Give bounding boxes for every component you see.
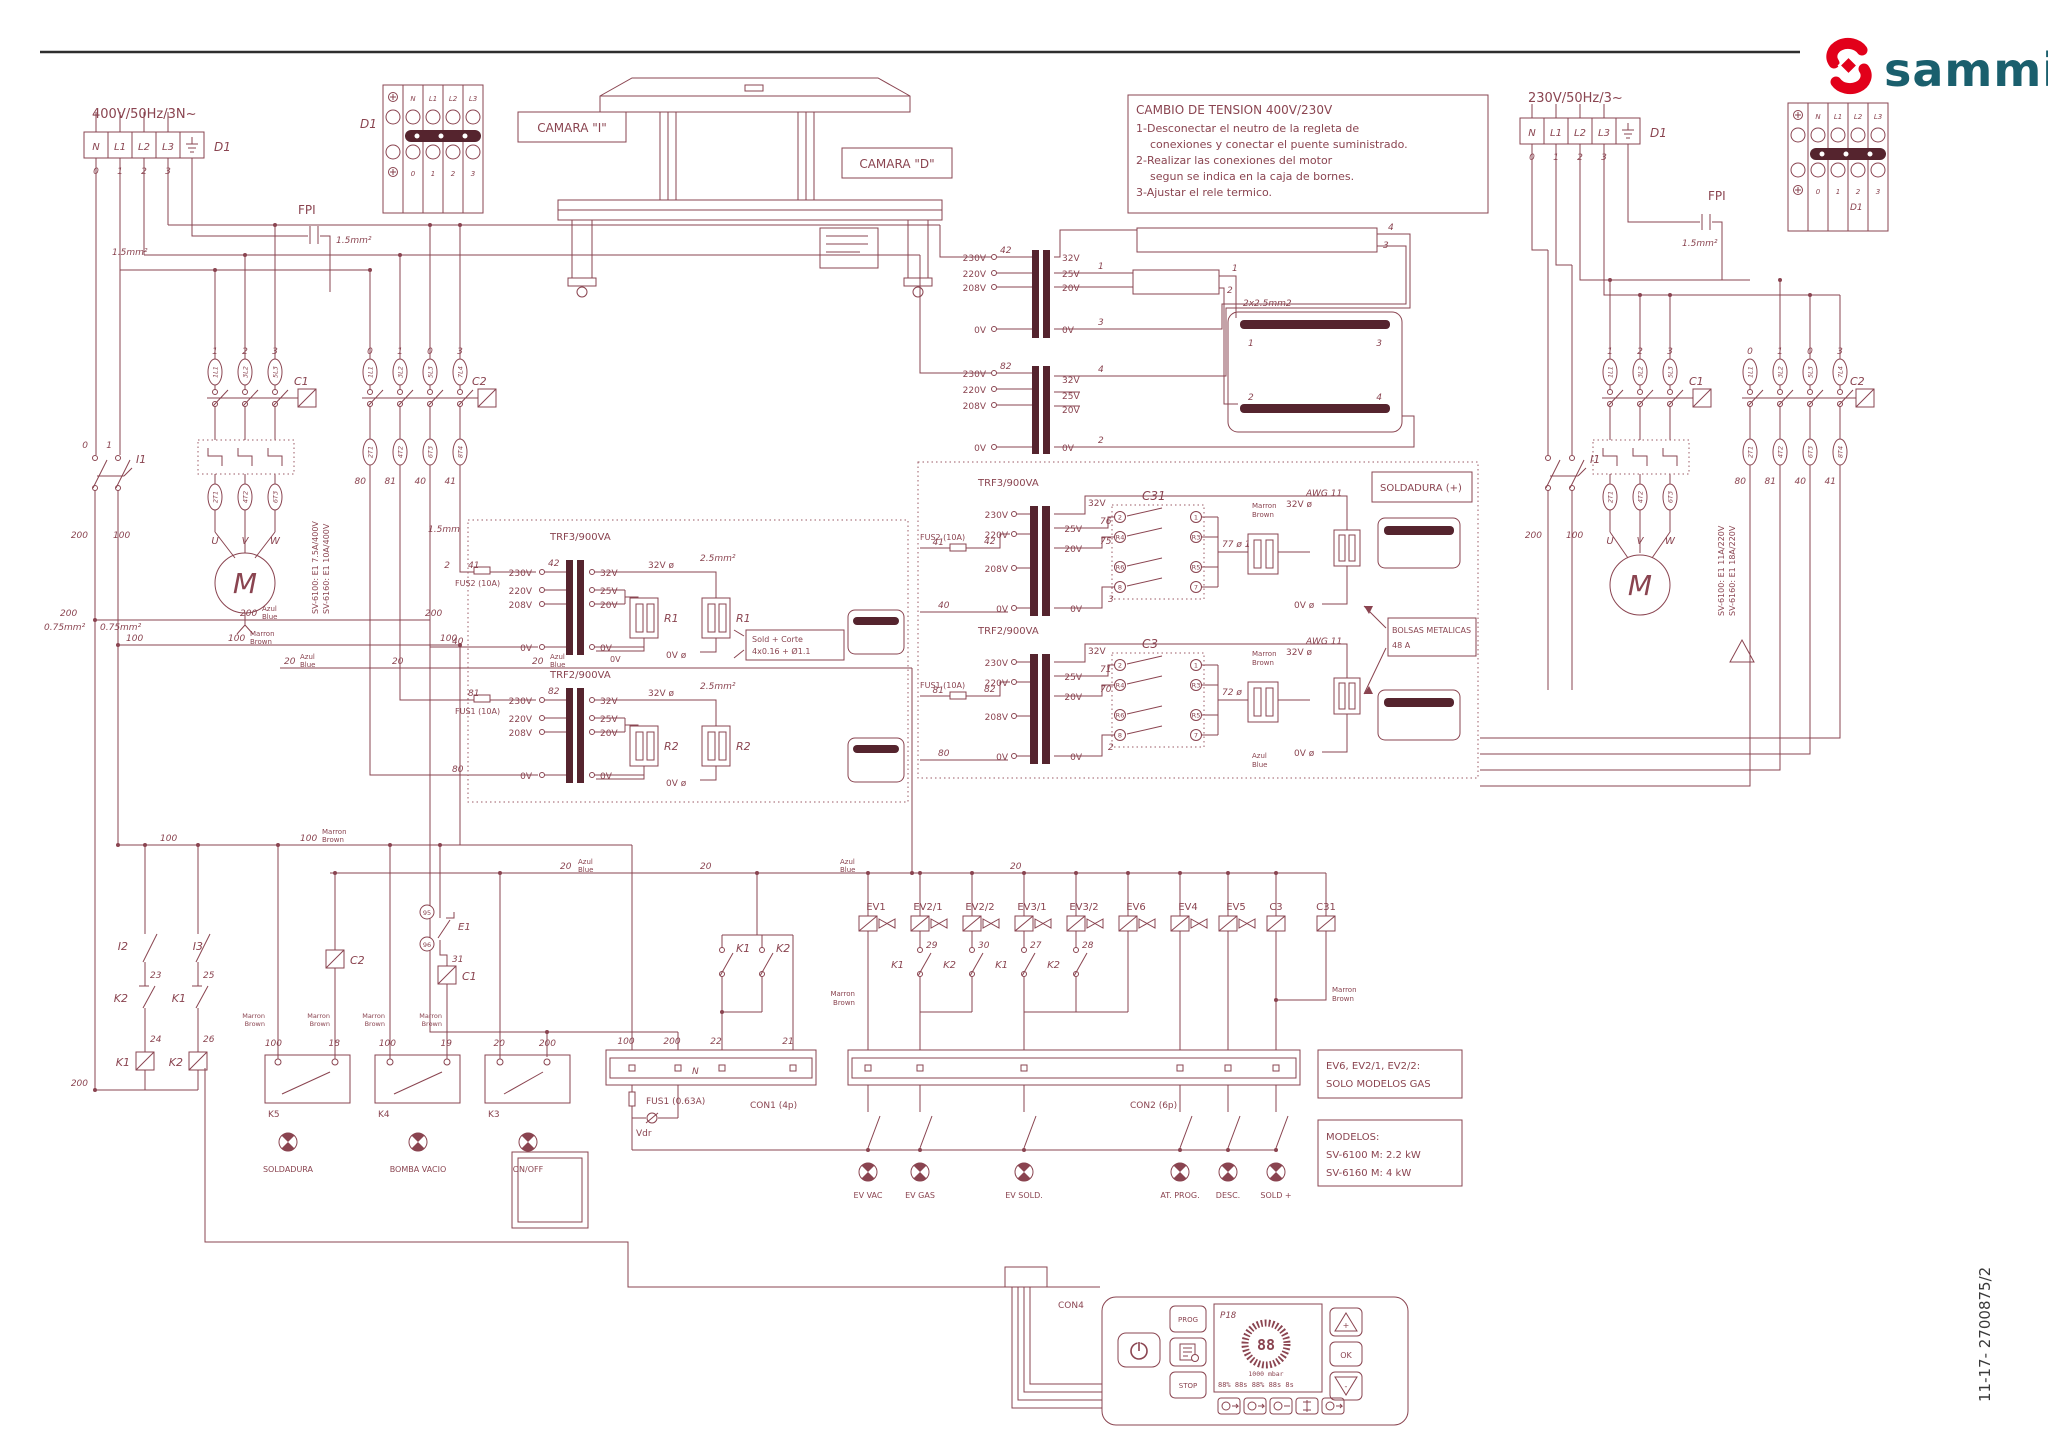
svg-text:SV-6160 M: 4 kW: SV-6160 M: 4 kW bbox=[1326, 1168, 1411, 1179]
svg-text:220V: 220V bbox=[963, 386, 987, 396]
wire-label: 2 bbox=[1098, 436, 1104, 446]
power-icon bbox=[1131, 1341, 1147, 1359]
svg-text:0V: 0V bbox=[996, 753, 1009, 763]
thermal-relay bbox=[198, 440, 294, 474]
svg-text:Azul: Azul bbox=[840, 858, 855, 866]
wire-label: 82 bbox=[548, 687, 560, 697]
wire-label: 4 bbox=[1098, 365, 1104, 375]
wire-section-label: 1.5mm² bbox=[1682, 239, 1718, 249]
machine-control-unit bbox=[820, 228, 878, 268]
contactor-c2-left: 0 1 0 3 1L1 3L2 5L3 7L4 C2 2T1 4T2 6T3 8… bbox=[355, 347, 496, 535]
terminal-oval: 5L3 bbox=[427, 366, 435, 378]
svg-text:R4: R4 bbox=[1116, 682, 1125, 690]
svg-text:32V: 32V bbox=[1062, 376, 1080, 386]
fuse-symbol bbox=[950, 544, 966, 551]
valve-ref: EV5 bbox=[1226, 902, 1246, 913]
wire-label: 200 bbox=[425, 609, 442, 619]
relay-ref: K3 bbox=[488, 1110, 500, 1120]
svg-text:18: 18 bbox=[329, 1039, 341, 1049]
svg-text:0: 0 bbox=[1816, 188, 1821, 196]
weld-bar-short bbox=[1133, 270, 1219, 294]
weld-plate-bar bbox=[1240, 320, 1390, 329]
svg-text:2T1: 2T1 bbox=[1747, 446, 1755, 458]
valve-ref: EV2/1 bbox=[913, 902, 942, 913]
svg-text:20: 20 bbox=[284, 657, 296, 667]
weld-bar-icon bbox=[848, 610, 904, 654]
sammic-logo-icon bbox=[1832, 43, 1866, 88]
contactor-c2-right: 0 1 0 3 1L1 3L2 5L3 7L4 C2 2T1 4T2 6T3 8… bbox=[1735, 347, 1874, 487]
terminal-oval: 3L2 bbox=[397, 366, 405, 378]
svg-text:R6: R6 bbox=[1116, 712, 1125, 720]
svg-text:1: 1 bbox=[1194, 514, 1198, 522]
terminal-label: N bbox=[1528, 128, 1536, 139]
svg-text:Brown: Brown bbox=[245, 1020, 265, 1028]
svg-text:K2: K2 bbox=[943, 960, 956, 971]
thermal-setting-note: SV-6100: E1 7.5A/400V SV-6160: E1 10A/40… bbox=[311, 521, 331, 614]
svg-text:6T3: 6T3 bbox=[1667, 491, 1675, 503]
wire-label: 0 bbox=[367, 347, 373, 357]
relay-row: Marron Brown Marron Brown Marron Brown M… bbox=[242, 1012, 570, 1174]
wire-section-label: 0.75mm² bbox=[44, 623, 86, 633]
svg-text:32V ø: 32V ø bbox=[1286, 648, 1312, 658]
svg-text:Brown: Brown bbox=[322, 836, 344, 844]
wire-label: 1 bbox=[1232, 264, 1238, 274]
wire-label: 42 bbox=[1000, 246, 1012, 256]
svg-text:20V: 20V bbox=[1064, 693, 1082, 703]
svg-text:1-Desconectar el neutro de la: 1-Desconectar el neutro de la regleta de bbox=[1136, 122, 1359, 135]
svg-text:220V: 220V bbox=[985, 679, 1009, 689]
svg-text:0V ø: 0V ø bbox=[666, 651, 687, 661]
svg-text:8: 8 bbox=[1118, 584, 1122, 592]
svg-text:2: 2 bbox=[1637, 347, 1643, 357]
terminal-oval: 2T1 bbox=[212, 491, 220, 503]
svg-text:Blue: Blue bbox=[840, 866, 856, 874]
wire-label: 1 bbox=[431, 170, 435, 178]
svg-text:0: 0 bbox=[1807, 347, 1813, 357]
wire-label: 1 bbox=[106, 441, 112, 451]
schematic-page: sammic 11-17- 2700875/2 400V/50Hz/3N~ N … bbox=[0, 0, 2048, 1453]
svg-text:5L3: 5L3 bbox=[1807, 366, 1815, 378]
svg-text:W: W bbox=[1665, 536, 1676, 547]
svg-text:0V ø: 0V ø bbox=[1294, 749, 1315, 759]
svg-text:SV-6160: E1 18A/220V: SV-6160: E1 18A/220V bbox=[1728, 525, 1737, 616]
stop-label: STOP bbox=[1179, 1382, 1197, 1390]
svg-text:segun se indica en la caja de: segun se indica en la caja de bornes. bbox=[1150, 170, 1354, 183]
svg-text:25V: 25V bbox=[600, 715, 618, 725]
resistor-ref: R2 bbox=[664, 740, 679, 753]
relay-ref: K4 bbox=[378, 1110, 390, 1120]
svg-text:Brown: Brown bbox=[422, 1020, 442, 1028]
svg-text:EV6, EV2/1, EV2/2:: EV6, EV2/1, EV2/2: bbox=[1326, 1061, 1420, 1072]
svg-text:Marron: Marron bbox=[322, 828, 347, 836]
terminal-oval: 6T3 bbox=[427, 446, 435, 458]
wire-label: 81 bbox=[933, 686, 944, 696]
svg-text:R3: R3 bbox=[1192, 682, 1201, 690]
contactor-ref: C1 bbox=[1689, 375, 1704, 388]
wire-label: 2 bbox=[1227, 286, 1233, 296]
wire-section-label: AWG 11 bbox=[1305, 489, 1342, 499]
supply-label: 230V/50Hz/3~ bbox=[1528, 91, 1623, 106]
svg-text:3: 3 bbox=[1876, 188, 1880, 196]
svg-text:100: 100 bbox=[300, 834, 317, 844]
svg-text:1L1: 1L1 bbox=[1607, 366, 1615, 378]
svg-text:32V ø: 32V ø bbox=[648, 561, 674, 571]
contactor-ref: C2 bbox=[472, 375, 487, 388]
resistor-ref: R2 bbox=[736, 740, 751, 753]
wire-label: 81 bbox=[385, 477, 396, 487]
wire-section-label: 2.5mm² bbox=[700, 554, 736, 564]
svg-text:Brown: Brown bbox=[310, 1020, 330, 1028]
svg-text:SV-6100 M: 2.2 kW: SV-6100 M: 2.2 kW bbox=[1326, 1150, 1421, 1161]
wiring-right bbox=[1480, 104, 1856, 786]
svg-text:R4: R4 bbox=[1116, 534, 1125, 542]
svg-text:Brown: Brown bbox=[250, 638, 272, 646]
wire-section-label: 1.5mm² bbox=[336, 236, 372, 246]
wire-label: 0 bbox=[82, 441, 88, 451]
switch-blades bbox=[93, 460, 132, 488]
terminal-oval: 1L1 bbox=[367, 366, 375, 378]
svg-text:20: 20 bbox=[392, 657, 404, 667]
terminal-label: N bbox=[410, 95, 416, 103]
svg-text:3L2: 3L2 bbox=[1637, 366, 1645, 378]
svg-text:19: 19 bbox=[441, 1039, 453, 1049]
svg-text:Blue: Blue bbox=[550, 661, 566, 669]
cable-label: 2x2.5mm2 bbox=[1243, 299, 1292, 309]
output-label: EV VAC bbox=[854, 1191, 883, 1200]
overload-ref: E1 bbox=[458, 922, 471, 933]
gas-models-note: EV6, EV2/1, EV2/2: SOLO MODELOS GAS bbox=[1318, 1050, 1462, 1098]
svg-text:100: 100 bbox=[160, 834, 177, 844]
svg-text:Marron: Marron bbox=[307, 1012, 330, 1020]
svg-text:Marron: Marron bbox=[242, 1012, 265, 1020]
trf-box-left: TRF3/900VA 2 41 FUS2 (10A) 230V 42 220V … bbox=[444, 520, 908, 802]
svg-text:2-Realizar las conexiones del: 2-Realizar las conexiones del motor bbox=[1136, 154, 1333, 167]
svg-text:96: 96 bbox=[423, 941, 431, 949]
svg-text:0V: 0V bbox=[996, 605, 1009, 615]
svg-text:5L3: 5L3 bbox=[1667, 366, 1675, 378]
wire-label: 3 bbox=[457, 347, 463, 357]
svg-text:100: 100 bbox=[265, 1039, 282, 1049]
svg-text:SV-6160: E1 10A/400V: SV-6160: E1 10A/400V bbox=[322, 523, 331, 614]
wire-label: 1 bbox=[397, 347, 403, 357]
weld-plate-bar bbox=[1240, 404, 1390, 413]
wire-section-label: 1.5mm bbox=[428, 525, 460, 535]
svg-text:20: 20 bbox=[700, 862, 712, 872]
svg-text:MODELOS:: MODELOS: bbox=[1326, 1132, 1379, 1143]
svg-text:+: + bbox=[1343, 1321, 1350, 1330]
svg-text:0V: 0V bbox=[974, 326, 987, 336]
connector-label: CON1 (4p) bbox=[750, 1101, 797, 1111]
svg-text:100: 100 bbox=[617, 1037, 634, 1047]
connector-label: CON4 bbox=[1058, 1301, 1084, 1311]
svg-text:32V ø: 32V ø bbox=[1286, 500, 1312, 510]
wire-label: 75 bbox=[1100, 537, 1112, 547]
wire-color: Brown bbox=[1252, 511, 1274, 519]
supply-230v-section: 230V/50Hz/3~ N L1 L2 L3 D1 0 1 2 3 FPI 1… bbox=[1520, 91, 1726, 249]
svg-text:20: 20 bbox=[532, 657, 544, 667]
svg-text:3: 3 bbox=[1376, 339, 1382, 349]
svg-text:2: 2 bbox=[1118, 514, 1122, 522]
svg-text:0V: 0V bbox=[1070, 605, 1083, 615]
svg-text:0V: 0V bbox=[600, 644, 613, 654]
menu-icon bbox=[1180, 1344, 1199, 1362]
panel-function-buttons bbox=[1218, 1398, 1344, 1414]
resistor-ref: R1 bbox=[664, 612, 679, 625]
terminal-oval: 7L4 bbox=[457, 366, 465, 378]
wire-color: Marron bbox=[1252, 650, 1277, 658]
svg-text:220V: 220V bbox=[509, 587, 533, 597]
wire-label: 80 bbox=[452, 765, 464, 775]
svg-text:220V: 220V bbox=[985, 531, 1009, 541]
contactor-ref: C2 bbox=[1850, 375, 1865, 388]
tap-label: 230V bbox=[963, 254, 987, 264]
wire-label: 82 bbox=[1000, 362, 1012, 372]
coil-ref: C2 bbox=[350, 954, 365, 967]
transformer-core bbox=[1032, 250, 1039, 338]
terminal-label: L2 bbox=[1574, 128, 1586, 139]
phase-label: V bbox=[242, 536, 250, 547]
wire-label: 42 bbox=[548, 559, 560, 569]
svg-text:95: 95 bbox=[423, 909, 431, 917]
fuse-symbol bbox=[950, 692, 966, 699]
contact-matrix-c31: C31 2 R4 R6 8 1 R3 R5 7 bbox=[1112, 489, 1204, 599]
machine-illustration: CAMARA "I" CAMARA "D" bbox=[518, 78, 952, 297]
svg-text:32V: 32V bbox=[600, 697, 618, 707]
wire-label: 80 bbox=[355, 477, 367, 487]
svg-text:2: 2 bbox=[1118, 662, 1122, 670]
svg-text:21: 21 bbox=[782, 1037, 793, 1047]
wire-label: 23 bbox=[150, 971, 162, 981]
contactor-ref: C3 bbox=[1142, 637, 1158, 651]
contact-matrix-c3: C3 2 R4 R6 8 1 R3 R5 7 bbox=[1112, 637, 1204, 747]
wire-label: 2 bbox=[1108, 743, 1114, 753]
svg-text:20: 20 bbox=[1010, 862, 1022, 872]
gauge-units: 1000 mbar bbox=[1248, 1370, 1283, 1378]
fpi-label: FPI bbox=[1708, 189, 1726, 203]
fuse-label: FUS1 (10A) bbox=[455, 707, 500, 716]
weld-resistor bbox=[1334, 678, 1360, 714]
wire-section-label: 2.5mm² bbox=[700, 682, 736, 692]
wire-section-label: AWG 11 bbox=[1305, 637, 1342, 647]
terminal-label: L2 bbox=[138, 142, 150, 153]
svg-text:K2: K2 bbox=[1047, 960, 1060, 971]
main-switch-right: I1 200 100 bbox=[1525, 453, 1600, 541]
svg-text:208V: 208V bbox=[985, 565, 1009, 575]
readout-row: 88% 88s 88% 88s 8s bbox=[1218, 1381, 1294, 1389]
wire-label: 100 bbox=[1566, 531, 1583, 541]
control-panel: PROG STOP P18 88 1000 mbar 88% 88s 88% 8… bbox=[1102, 1297, 1408, 1425]
wire-label: 3 bbox=[272, 347, 278, 357]
trf-title: TRF3/900VA bbox=[549, 532, 611, 543]
svg-text:230V: 230V bbox=[509, 569, 533, 579]
terminal-oval: 5L3 bbox=[272, 366, 280, 378]
bomba-button-icon bbox=[409, 1133, 427, 1151]
terminal-oval: 3L2 bbox=[242, 366, 250, 378]
weld-resistor bbox=[1334, 530, 1360, 566]
svg-text:0V ø: 0V ø bbox=[1294, 601, 1315, 611]
resistor-ref: R1 bbox=[736, 612, 751, 625]
connector-label: CON2 (6p) bbox=[1130, 1101, 1177, 1111]
wire-label: 40 bbox=[938, 601, 950, 611]
brand-text: sammic bbox=[1884, 43, 2048, 97]
soldadura-button-icon bbox=[279, 1133, 297, 1151]
svg-text:R6: R6 bbox=[1116, 564, 1125, 572]
thermal-setting-note: SV-6100: E1 11A/220V SV-6160: E1 18A/220… bbox=[1717, 525, 1737, 616]
coil-ref: C1 bbox=[462, 970, 477, 983]
wire-label: 200 bbox=[1525, 531, 1542, 541]
svg-text:3: 3 bbox=[1837, 347, 1843, 357]
neutral-label: N bbox=[692, 1067, 699, 1077]
svg-text:48 A: 48 A bbox=[1392, 641, 1411, 650]
svg-text:3: 3 bbox=[1667, 347, 1673, 357]
weld-bar-long bbox=[1137, 228, 1377, 252]
wire-label: 26 bbox=[203, 1035, 215, 1045]
modelos-note: MODELOS: SV-6100 M: 2.2 kW SV-6160 M: 4 … bbox=[1318, 1120, 1462, 1186]
d1-block-left: D1 N L1 L2 L3 0 1 2 3 bbox=[360, 85, 483, 213]
svg-text:100: 100 bbox=[440, 634, 457, 644]
wire-label: 77 ø 1 bbox=[1222, 540, 1250, 550]
fpi-filter-icon bbox=[310, 226, 318, 244]
svg-text:25V: 25V bbox=[1064, 673, 1082, 683]
wire-label: 0 bbox=[427, 347, 433, 357]
svg-text:2: 2 bbox=[1856, 188, 1861, 196]
svg-text:0V: 0V bbox=[1070, 753, 1083, 763]
svg-text:200: 200 bbox=[663, 1037, 680, 1047]
transformer-core bbox=[1032, 366, 1039, 454]
svg-text:conexiones y conectar el puent: conexiones y conectar el puente suminist… bbox=[1150, 138, 1408, 151]
terminal-label: L1 bbox=[429, 95, 437, 103]
svg-text:V: V bbox=[1637, 536, 1645, 547]
svg-text:R3: R3 bbox=[1192, 534, 1201, 542]
terminal-oval: 4T2 bbox=[397, 446, 405, 458]
svg-text:230V: 230V bbox=[985, 659, 1009, 669]
wire-label: 200 bbox=[71, 531, 88, 541]
voltage-change-note: CAMBIO DE TENSION 400V/230V 1-Desconecta… bbox=[1128, 95, 1488, 213]
sammic-logo: sammic bbox=[1832, 43, 2048, 97]
terminal-label: L1 bbox=[1550, 128, 1562, 139]
trf-title: TRF3/900VA bbox=[977, 478, 1039, 489]
camara-d-label: CAMARA "D" bbox=[859, 157, 934, 171]
wire-label: 30 bbox=[978, 941, 990, 951]
svg-text:20: 20 bbox=[494, 1039, 506, 1049]
output-label: SOLD + bbox=[1260, 1191, 1291, 1200]
wire-label: 41 bbox=[933, 538, 944, 548]
svg-text:0V: 0V bbox=[1062, 326, 1075, 336]
wire-label: 70 bbox=[1100, 685, 1112, 695]
svg-text:L1: L1 bbox=[1834, 113, 1842, 121]
con1-connector: K1 K2 100 200 22 21 N CON1 (4p) FUS1 (0.… bbox=[606, 942, 816, 1139]
onoff-button-icon bbox=[519, 1133, 537, 1151]
wire-label: 2 bbox=[242, 347, 248, 357]
svg-text:Blue: Blue bbox=[300, 661, 316, 669]
ev-wiring bbox=[868, 873, 1326, 1050]
svg-text:220V: 220V bbox=[963, 270, 987, 280]
wire-label: 72 ø bbox=[1222, 688, 1242, 698]
svg-text:208V: 208V bbox=[985, 713, 1009, 723]
svg-text:R5: R5 bbox=[1192, 712, 1201, 720]
varistor-label: Vdr bbox=[636, 1129, 652, 1139]
svg-text:4T2: 4T2 bbox=[1777, 446, 1785, 458]
svg-text:SOLDADURA (+): SOLDADURA (+) bbox=[1380, 483, 1462, 494]
block-ref: D1 bbox=[1850, 203, 1863, 213]
supply-400v-section: 400V/50Hz/3N~ N L1 L2 L3 D1 0 1 2 3 FPI … bbox=[84, 107, 372, 258]
wiring-left bbox=[95, 112, 1326, 1150]
block-ref: D1 bbox=[214, 140, 231, 154]
output-label: EV SOLD. bbox=[1005, 1191, 1043, 1200]
wire-color: Azul bbox=[1252, 752, 1267, 760]
valve-ref: EV1 bbox=[866, 902, 886, 913]
terminal-oval: 4T2 bbox=[242, 491, 250, 503]
svg-text:32V: 32V bbox=[1088, 499, 1106, 509]
latch-circuit: I2 23 K2 24 K1 I3 25 K1 26 K2 200 bbox=[71, 934, 215, 1089]
contactor-c1-left: 1 2 3 1L1 3L2 5L3 C1 2T1 4T2 6T3 U V W M… bbox=[198, 347, 331, 614]
valve-ref: EV3/2 bbox=[1069, 902, 1098, 913]
wire-label: 100 bbox=[113, 531, 130, 541]
weld-bar-icon bbox=[1378, 518, 1460, 568]
contact-ref: K2 bbox=[114, 992, 128, 1005]
wire-label: 76 bbox=[1100, 517, 1112, 527]
wire-label: 41 bbox=[445, 477, 456, 487]
valve-ref: EV4 bbox=[1178, 902, 1198, 913]
svg-text:32V: 32V bbox=[1062, 254, 1080, 264]
output-label: EV GAS bbox=[905, 1191, 935, 1200]
svg-text:L3: L3 bbox=[1874, 113, 1882, 121]
valve-ref: EV6 bbox=[1126, 902, 1146, 913]
wire-label: 4 bbox=[1388, 223, 1394, 233]
terminal-oval: 8T4 bbox=[457, 446, 465, 458]
svg-text:25V: 25V bbox=[1062, 392, 1080, 402]
earth-icon bbox=[186, 137, 198, 152]
weld-bar-icon bbox=[1378, 690, 1460, 740]
button-label: ON/OFF bbox=[513, 1165, 544, 1174]
weld-switch-box-right: TRF3/900VA FUS2 (10A) 41 42 230V 220V 20… bbox=[918, 462, 1478, 778]
wire-label: 1 bbox=[212, 347, 218, 357]
wire-color: Brown bbox=[1252, 659, 1274, 667]
svg-text:Brown: Brown bbox=[1332, 995, 1354, 1003]
svg-text:20V: 20V bbox=[1062, 284, 1080, 294]
terminal-oval: 2T1 bbox=[367, 446, 375, 458]
wire-section-label: 0.75mm² bbox=[100, 623, 142, 633]
weld-transformers-top: 230V 42 220V 208V 0V 32V 25V 1 20V 0V 3 … bbox=[963, 223, 1414, 454]
svg-text:0V: 0V bbox=[610, 655, 621, 664]
switch-ref: I1 bbox=[1590, 453, 1600, 466]
weld-bar-icon bbox=[848, 738, 904, 782]
phase-label: W bbox=[270, 536, 281, 547]
terminal-oval: 1L1 bbox=[212, 366, 220, 378]
trf-title: TRF2/900VA bbox=[549, 670, 611, 681]
svg-text:32V: 32V bbox=[600, 569, 618, 579]
wire-label: 1 bbox=[1098, 262, 1104, 272]
relay-ref: K5 bbox=[268, 1110, 280, 1120]
svg-text:81: 81 bbox=[1765, 477, 1776, 487]
svg-text:7: 7 bbox=[1194, 732, 1198, 740]
fuse-label: FUS2 (10A) bbox=[455, 579, 500, 588]
wire-label: 31 bbox=[452, 955, 463, 965]
svg-text:11-17- 2700875/2: 11-17- 2700875/2 bbox=[1976, 1267, 1994, 1402]
wire-label: 29 bbox=[926, 941, 938, 951]
svg-text:230V: 230V bbox=[963, 370, 987, 380]
svg-text:0V: 0V bbox=[974, 444, 987, 454]
weld-plate bbox=[1228, 312, 1402, 432]
fpi-filter-icon bbox=[1702, 214, 1710, 230]
svg-text:4T2: 4T2 bbox=[1637, 491, 1645, 503]
terminal-label: L3 bbox=[162, 142, 174, 153]
wire-label: 200 bbox=[240, 609, 257, 619]
motor-letter: M bbox=[1628, 569, 1652, 602]
svg-text:100: 100 bbox=[126, 634, 143, 644]
phase-label: U bbox=[211, 536, 219, 547]
wire-label: 71 bbox=[1100, 665, 1111, 675]
